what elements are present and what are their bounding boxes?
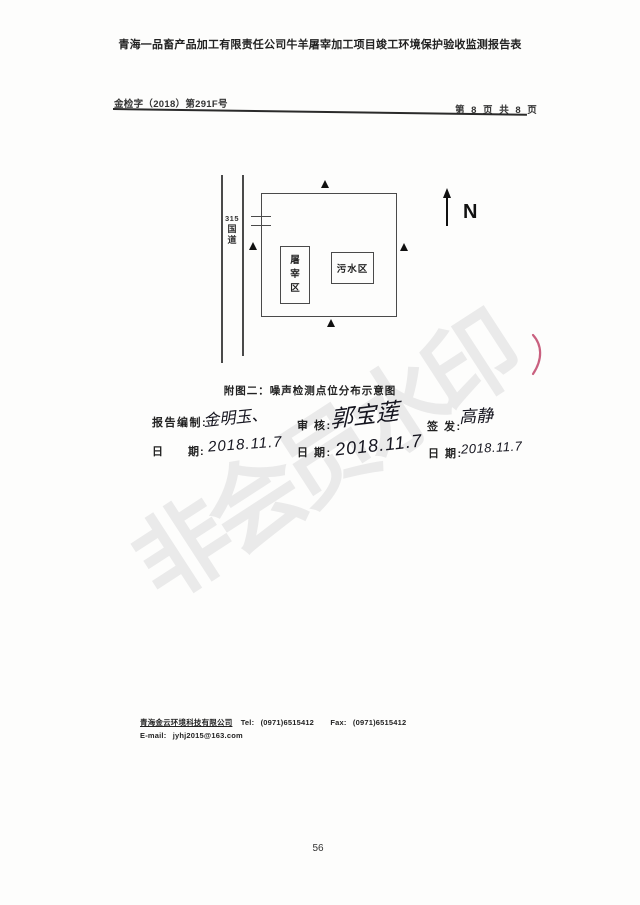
noise-point-marker-south	[327, 319, 335, 327]
road-char-guo: 国	[227, 224, 236, 234]
prepared-by-label: 报告编制:	[152, 414, 207, 430]
slaughter-char-3: 区	[290, 284, 300, 294]
issued-date-label: 日 期:	[428, 445, 463, 461]
footer-email-value: jyhj2015@163.com	[173, 731, 243, 740]
footer-tel-label: Tel:	[241, 718, 255, 727]
footer-fax-value: (0971)6515412	[353, 718, 406, 727]
reviewed-by-label: 审 核:	[297, 417, 332, 433]
footer-email-label: E-mail:	[140, 731, 166, 740]
report-title: 青海一品畜产品加工有限责任公司牛羊屠宰加工项目竣工环境保护验收监测报告表	[0, 36, 640, 52]
footer-line-2: E-mail: jyhj2015@163.com	[140, 731, 420, 740]
road-char-dao: 道	[227, 235, 236, 245]
reviewed-date-value: 2018.11.7	[334, 430, 423, 460]
page-content: 青海一品畜产品加工有限责任公司牛羊屠宰加工项目竣工环境保护验收监测报告表 金检字…	[0, 0, 640, 905]
red-pen-mark	[530, 333, 546, 377]
sewage-area-box: 污水区	[331, 252, 374, 284]
footer-line-1: 青海金云环境科技有限公司 Tel: (0971)6515412 Fax: (09…	[140, 717, 420, 728]
gate-mark-upper	[251, 216, 271, 217]
prepared-by-signature: 金明玉、	[202, 401, 268, 432]
noise-point-marker-east	[400, 243, 408, 251]
north-label: N	[463, 201, 477, 224]
slaughter-char-1: 屠	[290, 256, 300, 266]
prepared-date-label: 日 期:	[152, 443, 205, 459]
noise-point-marker-west	[249, 242, 257, 250]
noise-point-marker-north	[321, 180, 329, 188]
page-number: 56	[0, 843, 636, 854]
road-line-left	[221, 175, 223, 363]
issued-by-label: 签 发:	[427, 418, 462, 434]
figure-caption: 附图二：噪声检测点位分布示意图	[0, 383, 620, 398]
issued-date-value: 2018.11.7	[461, 438, 523, 456]
footer-company-name: 青海金云环境科技有限公司	[140, 718, 232, 727]
north-arrow-shaft	[446, 197, 448, 226]
slaughter-area-box: 屠 宰 区	[280, 246, 310, 304]
reviewed-by-signature: 郭宝莲	[330, 392, 399, 435]
scanned-report-page: 非会员水印 青海一品畜产品加工有限责任公司牛羊屠宰加工项目竣工环境保护验收监测报…	[0, 0, 640, 905]
reviewed-date-label: 日 期:	[297, 444, 332, 460]
prepared-date-value: 2018.11.7	[207, 433, 283, 455]
road-line-right	[242, 175, 244, 356]
slaughter-char-2: 宰	[290, 270, 300, 280]
gate-mark-lower	[251, 225, 271, 226]
north-arrow-head-icon	[443, 188, 451, 198]
footer-contact-block: 青海金云环境科技有限公司 Tel: (0971)6515412 Fax: (09…	[140, 717, 420, 743]
footer-fax-label: Fax:	[330, 718, 346, 727]
road-label-315-national-road: 315 国 道	[222, 214, 242, 245]
road-number: 315	[225, 214, 239, 223]
issued-by-signature: 高静	[458, 401, 493, 428]
footer-tel-value: (0971)6515412	[261, 718, 314, 727]
